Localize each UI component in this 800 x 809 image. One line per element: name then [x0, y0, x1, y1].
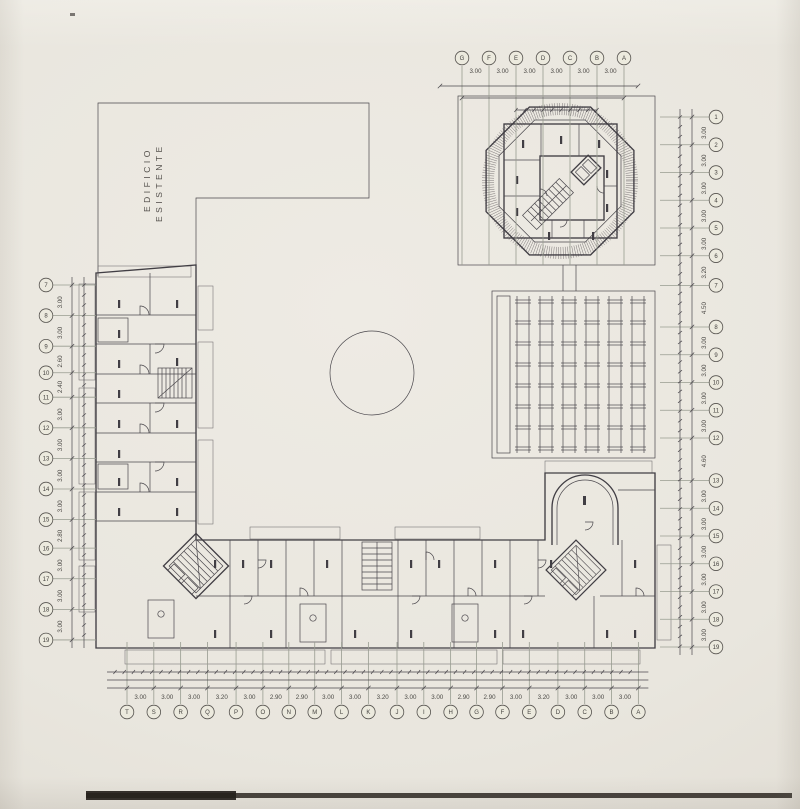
dimension-label: 3.00 [619, 694, 632, 701]
dimension-label: 3.00 [57, 438, 64, 451]
dimension-label: 3.00 [701, 210, 708, 223]
dimension-label: 3.20 [377, 694, 390, 701]
grid-bubble-label: C [583, 710, 588, 716]
grid-bubble-label: 12 [713, 436, 720, 442]
grid-bubble-label: E [514, 56, 518, 62]
grid-bubble-label: 11 [713, 408, 720, 414]
dimension-label: 4.60 [701, 455, 708, 468]
dimension-label: 2.80 [57, 529, 64, 542]
grid-bubble-label: B [595, 56, 599, 62]
grid-bubble-label: 19 [713, 645, 720, 651]
grid-bubble-label: P [234, 710, 238, 716]
dimension-label: 3.00 [57, 589, 64, 602]
grid-bubble-label: H [448, 710, 452, 716]
scanned-floor-plan-sheet: EDIFICIO ESISTENTE [0, 0, 800, 809]
dimension-label: 3.00 [701, 629, 708, 642]
floor-plan-drawing: EDIFICIO ESISTENTE [0, 0, 800, 809]
grid-bubble-label: C [568, 56, 573, 62]
grid-bubble-label: 14 [43, 487, 50, 493]
dimension-label: 3.00 [701, 154, 708, 167]
grid-bubble-label: M [312, 710, 317, 716]
grid-bubble-label: K [366, 710, 370, 716]
grid-bubble-label: 12 [43, 426, 50, 432]
grid-bubble-label: T [125, 710, 129, 716]
dimension-label: 3.00 [701, 237, 708, 250]
dimension-label: 3.00 [496, 68, 509, 75]
dimension-label: 3.00 [701, 545, 708, 558]
dimension-label: 3.00 [550, 68, 563, 75]
grid-axis-right: 123456789101112131415161718193.003.003.0… [660, 109, 723, 655]
grid-bubble-label: A [636, 710, 640, 716]
left-wing-partitions [96, 273, 196, 521]
dimension-label: 3.00 [510, 694, 523, 701]
dimension-label: 3.00 [701, 182, 708, 195]
main-building [96, 136, 655, 648]
grid-bubble-label: 16 [43, 546, 50, 552]
grid-axis-top: GFEDCBA3.003.003.003.003.003.00 [438, 51, 640, 265]
grid-bubble-label: 10 [43, 371, 50, 377]
grid-bubble-label: 19 [43, 638, 50, 644]
grid-bubble-label: 10 [713, 381, 720, 387]
corner-staircase-left [163, 533, 228, 598]
tower-octagon [458, 96, 655, 291]
grid-bubble-label: 13 [43, 457, 50, 463]
grid-bubble-label: A [622, 56, 626, 62]
dimension-label: 2.90 [458, 694, 471, 701]
grid-axis-bottom: TSRQPONMLKJIHGFEDCBA3.003.003.003.203.00… [107, 642, 648, 719]
pergola-grid [492, 291, 655, 458]
dimension-label: 3.00 [701, 419, 708, 432]
dimension-label: 3.00 [57, 296, 64, 309]
dimension-label: 3.00 [701, 392, 708, 405]
grid-bubble-label: N [287, 710, 291, 716]
grid-bubble-label: 13 [713, 479, 720, 485]
grid-bubble-label: 18 [43, 607, 50, 613]
dimension-label: 3.00 [565, 694, 578, 701]
arch-feature [552, 475, 655, 545]
grid-bubble-label: Q [205, 710, 210, 716]
dimension-label: 3.00 [701, 336, 708, 349]
grid-bubble-label: 18 [713, 617, 720, 623]
dimension-label: 4.50 [701, 302, 708, 315]
dimension-label: 3.00 [57, 620, 64, 633]
grid-bubble-label: J [395, 710, 398, 716]
dimension-label: 3.00 [243, 694, 256, 701]
grid-bubble-label: O [261, 710, 266, 716]
dimension-label: 3.00 [134, 694, 147, 701]
dimension-label: 3.00 [592, 694, 605, 701]
courtyard-fountain [330, 331, 414, 415]
grid-bubble-label: R [178, 710, 183, 716]
dimension-label: 3.00 [701, 601, 708, 614]
dimension-label: 3.20 [216, 694, 229, 701]
grid-bubble-label: F [501, 710, 505, 716]
existing-building-label-line2: ESISTENTE [154, 143, 164, 222]
grid-bubble-label: G [474, 710, 479, 716]
grid-bubble-label: G [460, 56, 465, 62]
grid-axis-left: 789101112131415161718193.003.002.602.403… [39, 277, 96, 648]
grid-bubble-label: 17 [43, 577, 50, 583]
grid-bubble-label: B [610, 710, 614, 716]
dimension-label: 3.00 [701, 126, 708, 139]
dimension-label: 3.00 [701, 518, 708, 531]
existing-building-label-line1: EDIFICIO [142, 147, 152, 212]
dimension-label: 3.00 [431, 694, 444, 701]
dimension-label: 2.90 [270, 694, 283, 701]
grid-bubble-label: 17 [713, 590, 720, 596]
dimension-label: 3.00 [322, 694, 335, 701]
dimension-label: 3.00 [404, 694, 417, 701]
dimension-label: 2.40 [57, 380, 64, 393]
grid-bubble-label: S [152, 710, 156, 716]
dimension-label: 3.00 [701, 364, 708, 377]
scan-speck [70, 13, 75, 16]
dimension-label: 3.00 [523, 68, 536, 75]
dimension-label: 3.20 [701, 266, 708, 279]
grid-bubble-label: 15 [713, 534, 720, 540]
existing-building-outline: EDIFICIO ESISTENTE [98, 103, 369, 276]
grid-bubble-label: 16 [713, 562, 720, 568]
dimension-label: 3.00 [57, 559, 64, 572]
tower-balcony-hatch [482, 103, 638, 259]
bottom-wing-partitions [148, 540, 655, 648]
dimension-label: 3.00 [701, 573, 708, 586]
dimension-label: 3.00 [577, 68, 590, 75]
tower-staircase [523, 179, 574, 230]
dimension-label: 3.00 [161, 694, 174, 701]
dimension-label: 3.00 [701, 490, 708, 503]
dimension-label: 3.00 [57, 500, 64, 513]
dimension-label: 3.00 [188, 694, 201, 701]
tower-elevator [571, 155, 601, 185]
dimension-label: 2.60 [57, 355, 64, 368]
grid-bubble-label: 14 [713, 506, 720, 512]
dimension-label: 3.00 [349, 694, 362, 701]
balcony-hatch-strips [79, 266, 671, 664]
dimension-label: 2.90 [296, 694, 309, 701]
grid-bubble-label: F [487, 56, 491, 62]
dimension-label: 3.00 [57, 408, 64, 421]
grid-bubble-label: E [527, 710, 531, 716]
grid-bubble-label: 11 [43, 395, 50, 401]
dimension-label: 3.20 [538, 694, 551, 701]
dimension-label: 3.00 [57, 469, 64, 482]
dimension-label: 3.00 [604, 68, 617, 75]
grid-bubble-label: 15 [43, 518, 50, 524]
grid-bubble-label: D [556, 710, 561, 716]
scan-edge-mark-thick [86, 791, 236, 800]
corner-staircase-right [546, 540, 606, 600]
dimension-label: 2.90 [483, 694, 496, 701]
dimension-label: 3.00 [469, 68, 482, 75]
grid-bubble-label: D [541, 56, 546, 62]
dimension-label: 3.00 [57, 326, 64, 339]
